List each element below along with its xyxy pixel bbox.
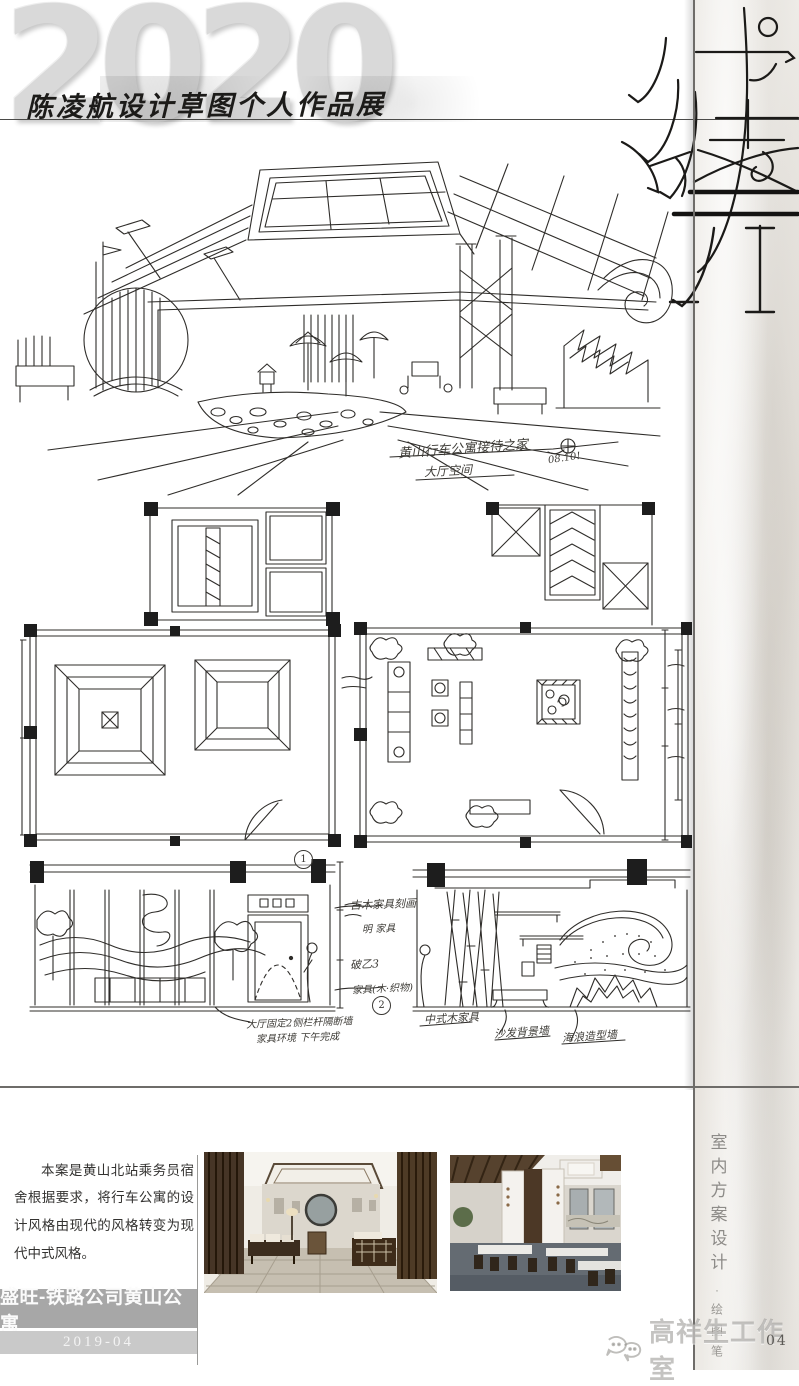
vertical-divider (693, 0, 695, 1370)
sketch-caption-2: 大厅空间 (424, 461, 473, 480)
studio-watermark: 高祥生工作室 (606, 1312, 799, 1386)
photo-column-rule (197, 1155, 198, 1365)
perspective-sketch (8, 150, 690, 498)
side-separator: · (715, 1283, 719, 1297)
render-photo-dining (450, 1155, 621, 1291)
note-right-0: 中式木家具 (424, 1009, 480, 1028)
horizontal-divider (0, 1086, 799, 1088)
elevation-2-badge: 2 (372, 996, 391, 1015)
floor-plans-sketch (20, 500, 692, 848)
project-banner: 盛旺-铁路公司黄山公寓 (0, 1289, 197, 1328)
note-mid-3: 家具(木·织物) (352, 978, 414, 996)
chat-bubbles-icon (606, 1333, 643, 1365)
elevation-1-badge: 1 (294, 850, 313, 869)
project-description: 本案是黄山北站乘务员宿舍根据要求，将行车公寓的设计风格由现代的风格转变为现代中式… (14, 1157, 194, 1268)
side-title: 室内方案设计 (705, 1133, 730, 1277)
studio-name: 高祥生工作室 (649, 1312, 799, 1386)
date-banner-label: 2019-04 (63, 1334, 134, 1351)
note-mid-2: 破乙3 (350, 955, 380, 972)
render-photo-lobby (204, 1152, 437, 1293)
date-banner: 2019-04 (0, 1331, 197, 1354)
project-banner-label: 盛旺-铁路公司黄山公寓 (0, 1282, 197, 1336)
note-mid-1: 明 家具 (362, 919, 396, 935)
page-number: 04 (766, 1333, 788, 1349)
note-mid-0: 古木家具刻画 (350, 895, 417, 913)
note-left-1: 家具环境 下午完成 (256, 1028, 340, 1046)
